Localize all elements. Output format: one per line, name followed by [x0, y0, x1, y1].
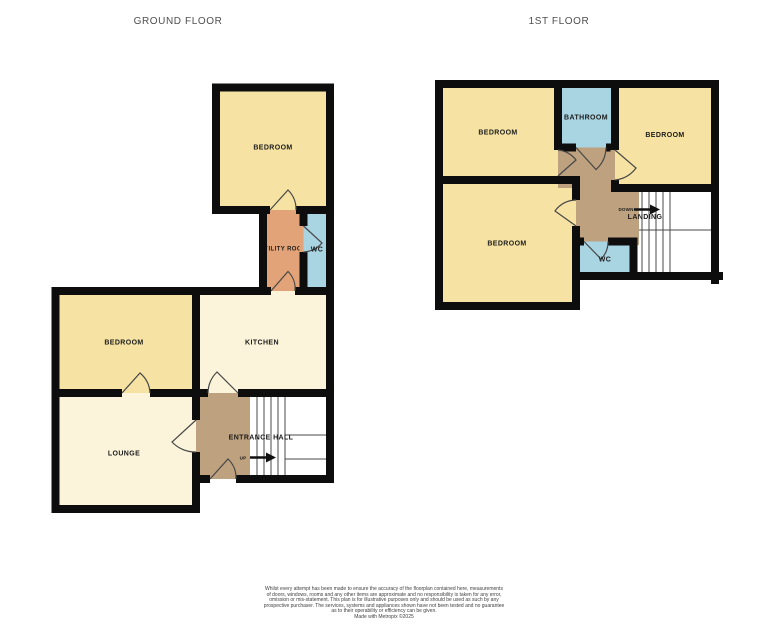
door-gap	[576, 200, 581, 226]
ff-bathroom-label: BATHROOM	[564, 115, 608, 122]
gf-kitchen-label: KITCHEN	[245, 340, 279, 347]
door-gap	[554, 150, 559, 176]
gf-bedroom-label: BEDROOM	[104, 340, 143, 347]
disclaimer: Whilst every attempt has been made to en…	[0, 587, 768, 620]
door-gap	[208, 393, 238, 398]
door-gap	[210, 479, 236, 484]
ff-bedroom-top-right-label: BEDROOM	[645, 132, 684, 139]
gf-lounge-label: LOUNGE	[108, 451, 140, 458]
ff-bedroom-top-left-label: BEDROOM	[478, 130, 517, 137]
gf-bedroom-top-label: BEDROOM	[253, 145, 292, 152]
door-gap	[576, 148, 606, 153]
ff-wc-label: WC	[599, 257, 611, 264]
door-gap	[299, 226, 304, 252]
door-gap	[576, 143, 606, 148]
gf-wc-label: WC	[311, 247, 323, 254]
ff-bedroom-large-label: BEDROOM	[487, 241, 526, 248]
door-gap	[270, 210, 296, 215]
door-gap	[192, 420, 197, 452]
gf-stairs-up-label: UP	[240, 456, 247, 461]
door-gap	[122, 393, 150, 398]
door-gap	[271, 291, 295, 296]
ff-stairs-down-label: DOWN	[618, 207, 633, 212]
gf-entrance-hall-label: ENTRANCE HALL	[229, 435, 294, 442]
door-gap	[611, 150, 616, 180]
door-gap	[196, 420, 201, 452]
door-gap	[615, 150, 620, 180]
floorplan-page: GROUND FLOOR 1ST FLOOR	[0, 0, 768, 626]
door-gap	[584, 237, 608, 242]
metropix-credit: Made with Metropix ©2025	[0, 615, 768, 621]
floorplan-drawing: BEDROOM UTILITY ROOM WC BEDROOM KITCHEN …	[0, 0, 768, 626]
ff-landing-label: LANDING	[628, 214, 663, 221]
ff-stairwell-area	[635, 188, 715, 276]
door-gap	[572, 200, 577, 226]
